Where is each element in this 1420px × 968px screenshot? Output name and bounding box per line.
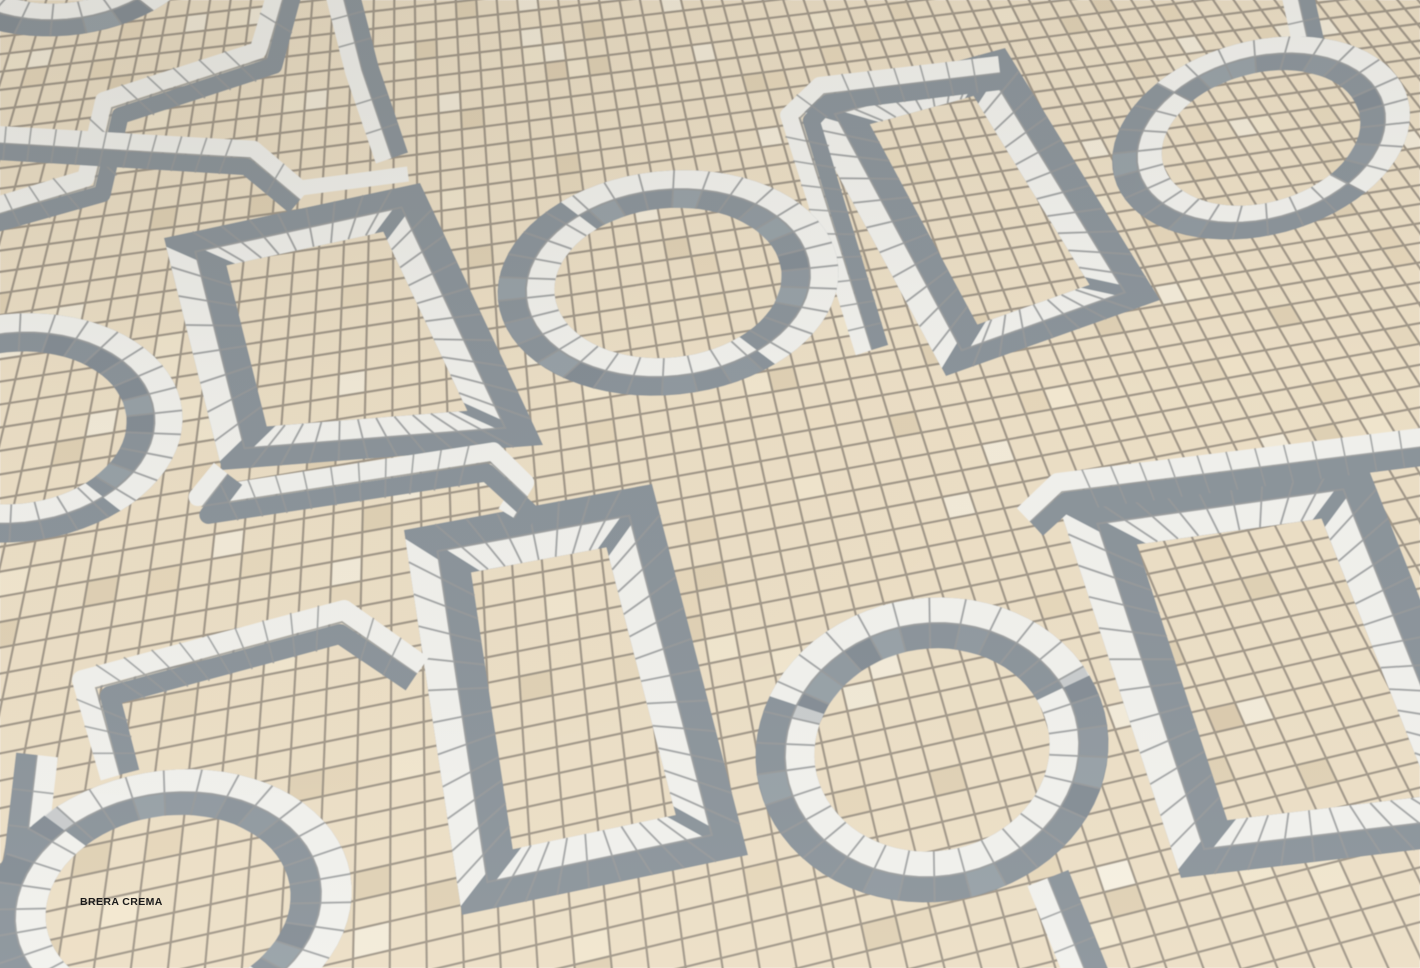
svg-text:BRERA CREMA: BRERA CREMA xyxy=(80,896,163,908)
